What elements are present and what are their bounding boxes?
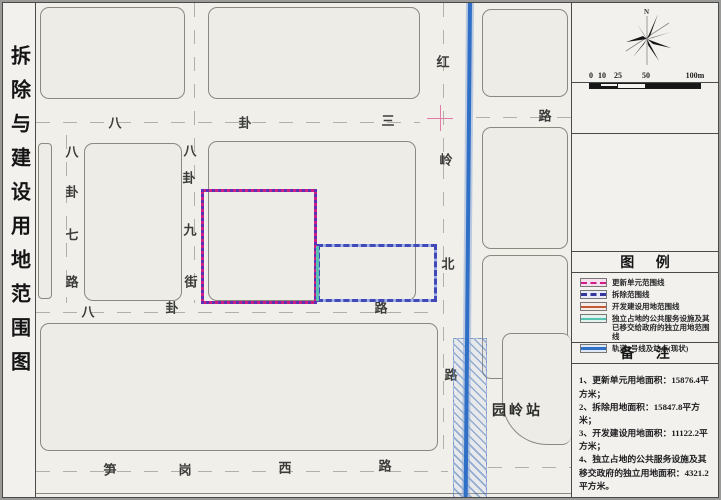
legend-swatch xyxy=(580,290,607,299)
road-label-char: 路 xyxy=(538,106,551,125)
note-line: 2、拆除用地面积：15847.8平方米； xyxy=(579,401,712,427)
city-block xyxy=(84,143,182,301)
legend-item: 更新单元范围线 xyxy=(580,278,714,287)
notes-header: 备 注 xyxy=(611,343,679,363)
road-label-char: 路 xyxy=(65,272,78,291)
city-block xyxy=(40,7,185,99)
legend-item: 独立占地的公共服务设施及其已移交给政府的独立用地范围线 xyxy=(580,314,714,341)
legend-item: 拆除范围线 xyxy=(580,290,714,299)
road-label-char: 八 xyxy=(108,113,121,132)
map-bottom-edge xyxy=(36,493,571,494)
metro-station-area xyxy=(453,338,487,497)
road-label-char: 三 xyxy=(381,111,394,130)
north-compass-icon: N xyxy=(622,5,672,69)
road-label-char: 八 xyxy=(65,142,78,161)
road-label-char: 岗 xyxy=(178,460,191,479)
legend-item: 开发建设用地范围线 xyxy=(580,302,714,311)
map-canvas: 园岭站 八卦三路八卦七路八卦九街红岭北路八卦路笋岗西路 xyxy=(36,3,571,497)
city-block xyxy=(40,323,438,451)
scale-label: 10 xyxy=(598,71,606,80)
legend-label: 更新单元范围线 xyxy=(612,278,665,287)
road-label-char: 红 xyxy=(436,52,449,71)
road-label-char: 卦 xyxy=(238,113,251,132)
legend-items: 更新单元范围线拆除范围线开发建设用地范围线独立占地的公共服务设施及其已移交给政府… xyxy=(572,273,718,343)
legend-label: 独立占地的公共服务设施及其已移交给政府的独立用地范围线 xyxy=(612,314,714,341)
planning-map-sheet: 拆除与建设用地范围图 xyxy=(0,0,721,500)
road-label-char: 八 xyxy=(81,302,94,321)
road-centerline xyxy=(443,3,444,455)
demolition-boundary-overlay xyxy=(201,189,317,304)
city-block xyxy=(482,9,568,97)
legend-label: 拆除范围线 xyxy=(612,290,650,299)
note-line: 3、开发建设用地面积：11122.2平方米； xyxy=(579,427,712,453)
city-block xyxy=(482,127,568,249)
road-centerline xyxy=(476,117,571,118)
scale-label: 25 xyxy=(614,71,622,80)
panel-spacer xyxy=(572,134,718,252)
city-block xyxy=(38,143,52,299)
notes-header-section: 备 注 xyxy=(572,343,718,364)
road-label-char: 卦 xyxy=(182,168,195,187)
road-label-char: 岭 xyxy=(439,150,452,169)
panel-spacer xyxy=(572,83,718,135)
legend-label: 开发建设用地范围线 xyxy=(612,302,680,311)
north-label: N xyxy=(644,8,649,16)
city-block xyxy=(208,7,420,99)
note-line: 1、更新单元用地面积：15876.4平方米； xyxy=(579,374,712,400)
legend-swatch xyxy=(580,314,607,323)
legend-swatch xyxy=(580,302,607,311)
road-label-char: 街 xyxy=(184,272,197,291)
independent-land-edge xyxy=(316,246,319,301)
road-label-char: 卦 xyxy=(65,182,78,201)
road-label-char: 西 xyxy=(278,458,291,477)
note-line: 4、独立占地的公共服务设施及其移交政府的独立用地面积：4321.2平方米。 xyxy=(579,453,712,493)
legend-header: 图 例 xyxy=(611,252,679,272)
road-centerline xyxy=(488,467,571,468)
sheet-title-bar: 拆除与建设用地范围图 xyxy=(3,3,36,497)
road-centerline xyxy=(36,122,420,123)
demolition-boundary xyxy=(317,244,437,302)
road-label-char: 七 xyxy=(65,225,78,244)
road-label-char: 八 xyxy=(183,141,196,160)
station-label: 园岭站 xyxy=(492,400,543,420)
sheet-title: 拆除与建设用地范围图 xyxy=(5,3,34,497)
scale-label: 100m xyxy=(686,71,705,80)
scale-label: 50 xyxy=(642,71,650,80)
compass-scale-section: N xyxy=(572,3,718,83)
info-panel: N xyxy=(571,3,718,497)
scale-label: 0 xyxy=(589,71,593,80)
road-label-char: 北 xyxy=(441,254,454,273)
road-label-char: 九 xyxy=(183,220,196,239)
notes-body: 1、更新单元用地面积：15876.4平方米；2、拆除用地面积：15847.8平方… xyxy=(572,364,718,497)
legend-swatch xyxy=(580,278,607,287)
road-label-char: 卦 xyxy=(165,298,178,317)
road-label-char: 笋 xyxy=(103,460,116,479)
road-label-char: 路 xyxy=(378,456,391,475)
legend-header-section: 图 例 xyxy=(572,252,718,273)
city-block xyxy=(502,333,571,445)
